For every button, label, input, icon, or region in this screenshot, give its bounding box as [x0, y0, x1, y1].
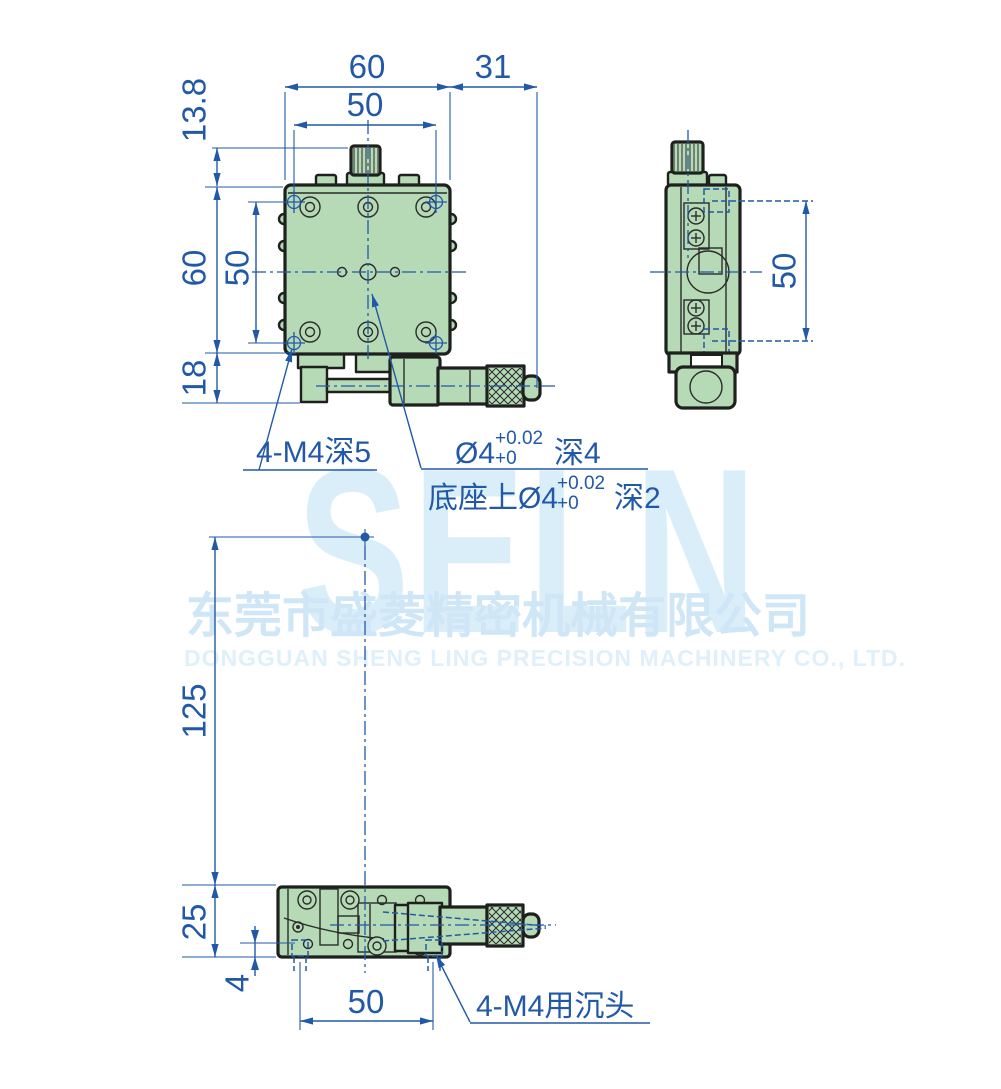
- annotation-counterbore: 4-M4用沉头: [476, 990, 634, 1023]
- dim-bottom-height: 25: [176, 904, 213, 941]
- dim-knob-height: 13.8: [176, 78, 213, 142]
- bottom-micrometer: [395, 903, 539, 953]
- annotation-center-hole-tol-upper: +0.02: [495, 428, 543, 449]
- annotation-base-hole-tol-lower: +0: [557, 493, 579, 514]
- annotation-base-hole-depth: 深2: [614, 482, 661, 515]
- bottom-view: [278, 887, 556, 971]
- annotation-center-hole-tol-lower: +0: [495, 448, 517, 469]
- watermark-company-en: DONGGUAN SHENG LING PRECISION MACHINERY …: [184, 645, 906, 671]
- dim-top-width: 60: [349, 48, 386, 85]
- dim-bottom-hole-span: 50: [348, 983, 385, 1020]
- front-base: [298, 353, 393, 402]
- annotation-corner-thread: 4-M4深5: [256, 436, 371, 469]
- side-knob: [668, 142, 726, 187]
- dim-bottom-recess: 4: [219, 974, 256, 992]
- stage-drawing: SELN 东莞市盛菱精密机械有限公司 DONGGUAN SHENG LING P…: [0, 0, 1001, 1089]
- annotation-base-hole-label: 底座上Ø4: [428, 482, 558, 515]
- technical-drawing-page: SELN 东莞市盛菱精密机械有限公司 DONGGUAN SHENG LING P…: [0, 0, 1001, 1089]
- dim-top-offset: 31: [475, 48, 512, 85]
- dim-top-hole-span: 50: [347, 86, 384, 123]
- side-foot: [669, 353, 737, 408]
- dim-base-height: 18: [176, 360, 213, 397]
- dim-left-hole-span: 50: [219, 250, 256, 287]
- annotation-center-hole-depth: 深4: [554, 437, 601, 470]
- dim-left-height: 60: [176, 250, 213, 287]
- annotation-center-hole-dia: Ø4: [455, 437, 495, 470]
- side-view: [650, 130, 762, 408]
- watermark-company-cn: 东莞市盛菱精密机械有限公司: [186, 590, 810, 643]
- front-knob-knurl: [353, 148, 378, 173]
- front-view: [252, 120, 556, 406]
- annotation-base-hole-tol-upper: +0.02: [557, 473, 605, 494]
- dim-side-hole-span: 50: [766, 253, 803, 290]
- dim-center-to-base: 125: [176, 683, 213, 738]
